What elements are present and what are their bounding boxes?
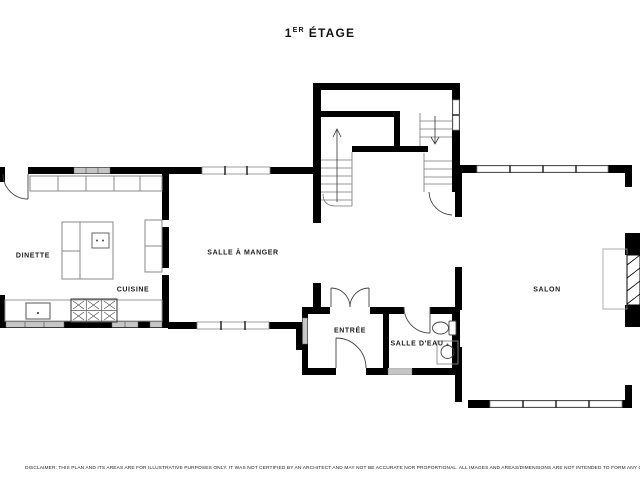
floor-plan-drawing	[0, 0, 640, 480]
toilet-icon	[433, 321, 457, 335]
upper-cabinets-icon	[30, 176, 162, 191]
front-door-icon	[336, 338, 366, 368]
window-mullions	[221, 115, 589, 408]
floor-plan-page: 1ERÉTAGE	[0, 0, 640, 480]
room-label-entree: ENTRÉE	[334, 328, 366, 335]
room-label-cuisine: CUISINE	[117, 287, 150, 294]
disclaimer-text: DISCLAIMER: THIS PLAN AND ITS AREAS ARE …	[25, 465, 625, 470]
side-counter-icon	[145, 220, 162, 272]
staircase-icon	[321, 113, 452, 206]
room-label-salon: SALON	[533, 287, 561, 294]
wall-layer	[0, 83, 640, 408]
room-label-salle-a-manger: SALLE À MANGER	[207, 250, 278, 257]
kitchen-island-icon	[62, 222, 113, 279]
range-burners-icon	[71, 299, 117, 322]
kitchen-fixtures	[5, 176, 162, 322]
room-label-dinette: DINETTE	[16, 253, 50, 260]
room-label-salle-d-eau: SALLE D'EAU	[391, 341, 444, 348]
fireplace-icon	[603, 249, 640, 309]
kitchen-sink-icon	[26, 303, 50, 319]
entry-double-door-icon	[331, 288, 369, 307]
